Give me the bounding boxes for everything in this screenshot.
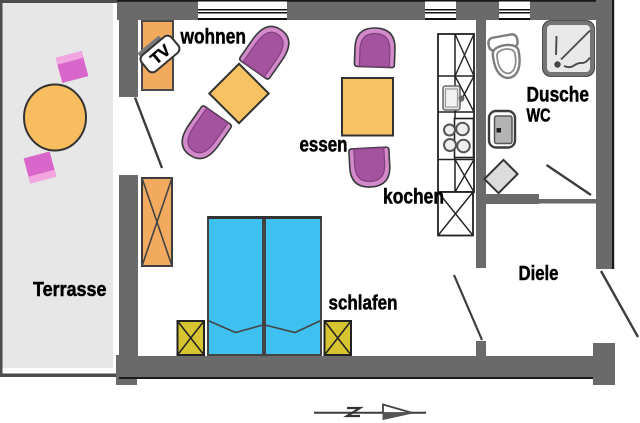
svg-text:WC: WC <box>527 106 551 126</box>
svg-text:schlafen: schlafen <box>329 292 398 314</box>
svg-text:Dusche: Dusche <box>527 84 590 107</box>
svg-text:Diele: Diele <box>519 263 559 285</box>
svg-text:essen: essen <box>300 134 348 157</box>
svg-text:Terrasse: Terrasse <box>33 279 107 301</box>
svg-text:wohnen: wohnen <box>180 26 246 49</box>
svg-text:kochen: kochen <box>383 185 444 208</box>
